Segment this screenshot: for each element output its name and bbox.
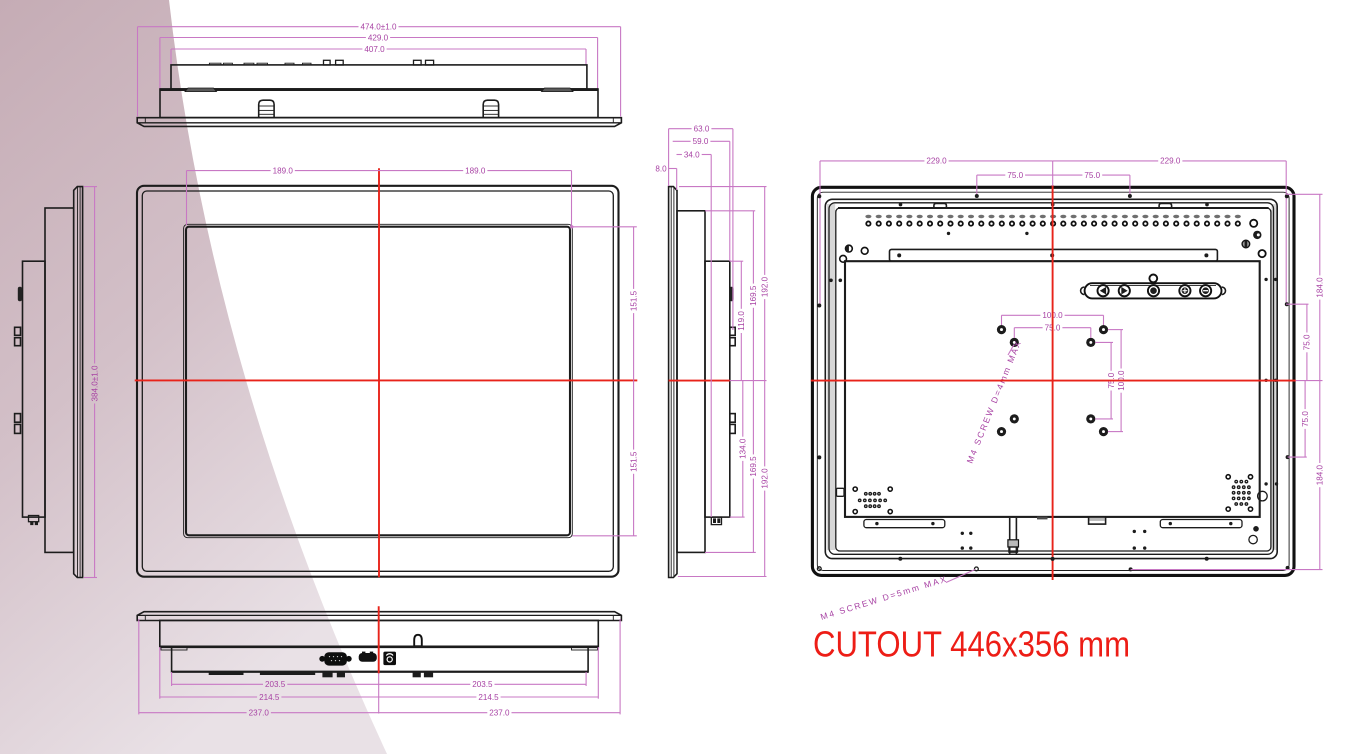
svg-text:407.0: 407.0 [364, 45, 385, 54]
svg-text:184.0: 184.0 [1316, 464, 1325, 485]
svg-text:CUTOUT 446x356 mm: CUTOUT 446x356 mm [813, 624, 1130, 665]
svg-text:75.0: 75.0 [1007, 171, 1023, 180]
svg-text:34.0: 34.0 [684, 150, 700, 159]
svg-text:237.0: 237.0 [489, 709, 510, 718]
svg-text:59.0: 59.0 [693, 137, 709, 146]
svg-text:474.0±1.0: 474.0±1.0 [361, 23, 397, 32]
svg-text:203.5: 203.5 [265, 680, 286, 689]
svg-text:119.0: 119.0 [737, 311, 746, 331]
svg-text:214.5: 214.5 [478, 693, 499, 702]
svg-text:75.0: 75.0 [1301, 411, 1310, 427]
svg-text:75.0: 75.0 [1303, 334, 1312, 350]
svg-text:214.5: 214.5 [259, 693, 280, 702]
svg-text:134.0: 134.0 [739, 438, 748, 459]
svg-text:189.0: 189.0 [465, 166, 486, 175]
svg-text:151.5: 151.5 [629, 451, 638, 472]
svg-text:192.0: 192.0 [761, 276, 770, 297]
svg-text:169.5: 169.5 [749, 285, 758, 306]
svg-text:151.5: 151.5 [629, 290, 638, 311]
svg-text:184.0: 184.0 [1316, 277, 1325, 298]
svg-text:192.0: 192.0 [761, 468, 770, 489]
svg-text:229.0: 229.0 [1160, 157, 1181, 166]
svg-text:203.5: 203.5 [472, 680, 493, 689]
svg-text:8.0: 8.0 [655, 164, 667, 173]
svg-text:63.0: 63.0 [694, 125, 710, 134]
svg-text:384.0±1.0: 384.0±1.0 [90, 365, 99, 401]
svg-text:75.0: 75.0 [1084, 171, 1100, 180]
svg-text:237.0: 237.0 [249, 709, 270, 718]
svg-text:189.0: 189.0 [273, 166, 294, 175]
svg-text:229.0: 229.0 [926, 157, 947, 166]
svg-text:169.5: 169.5 [749, 456, 758, 477]
svg-text:429.0: 429.0 [368, 33, 389, 42]
